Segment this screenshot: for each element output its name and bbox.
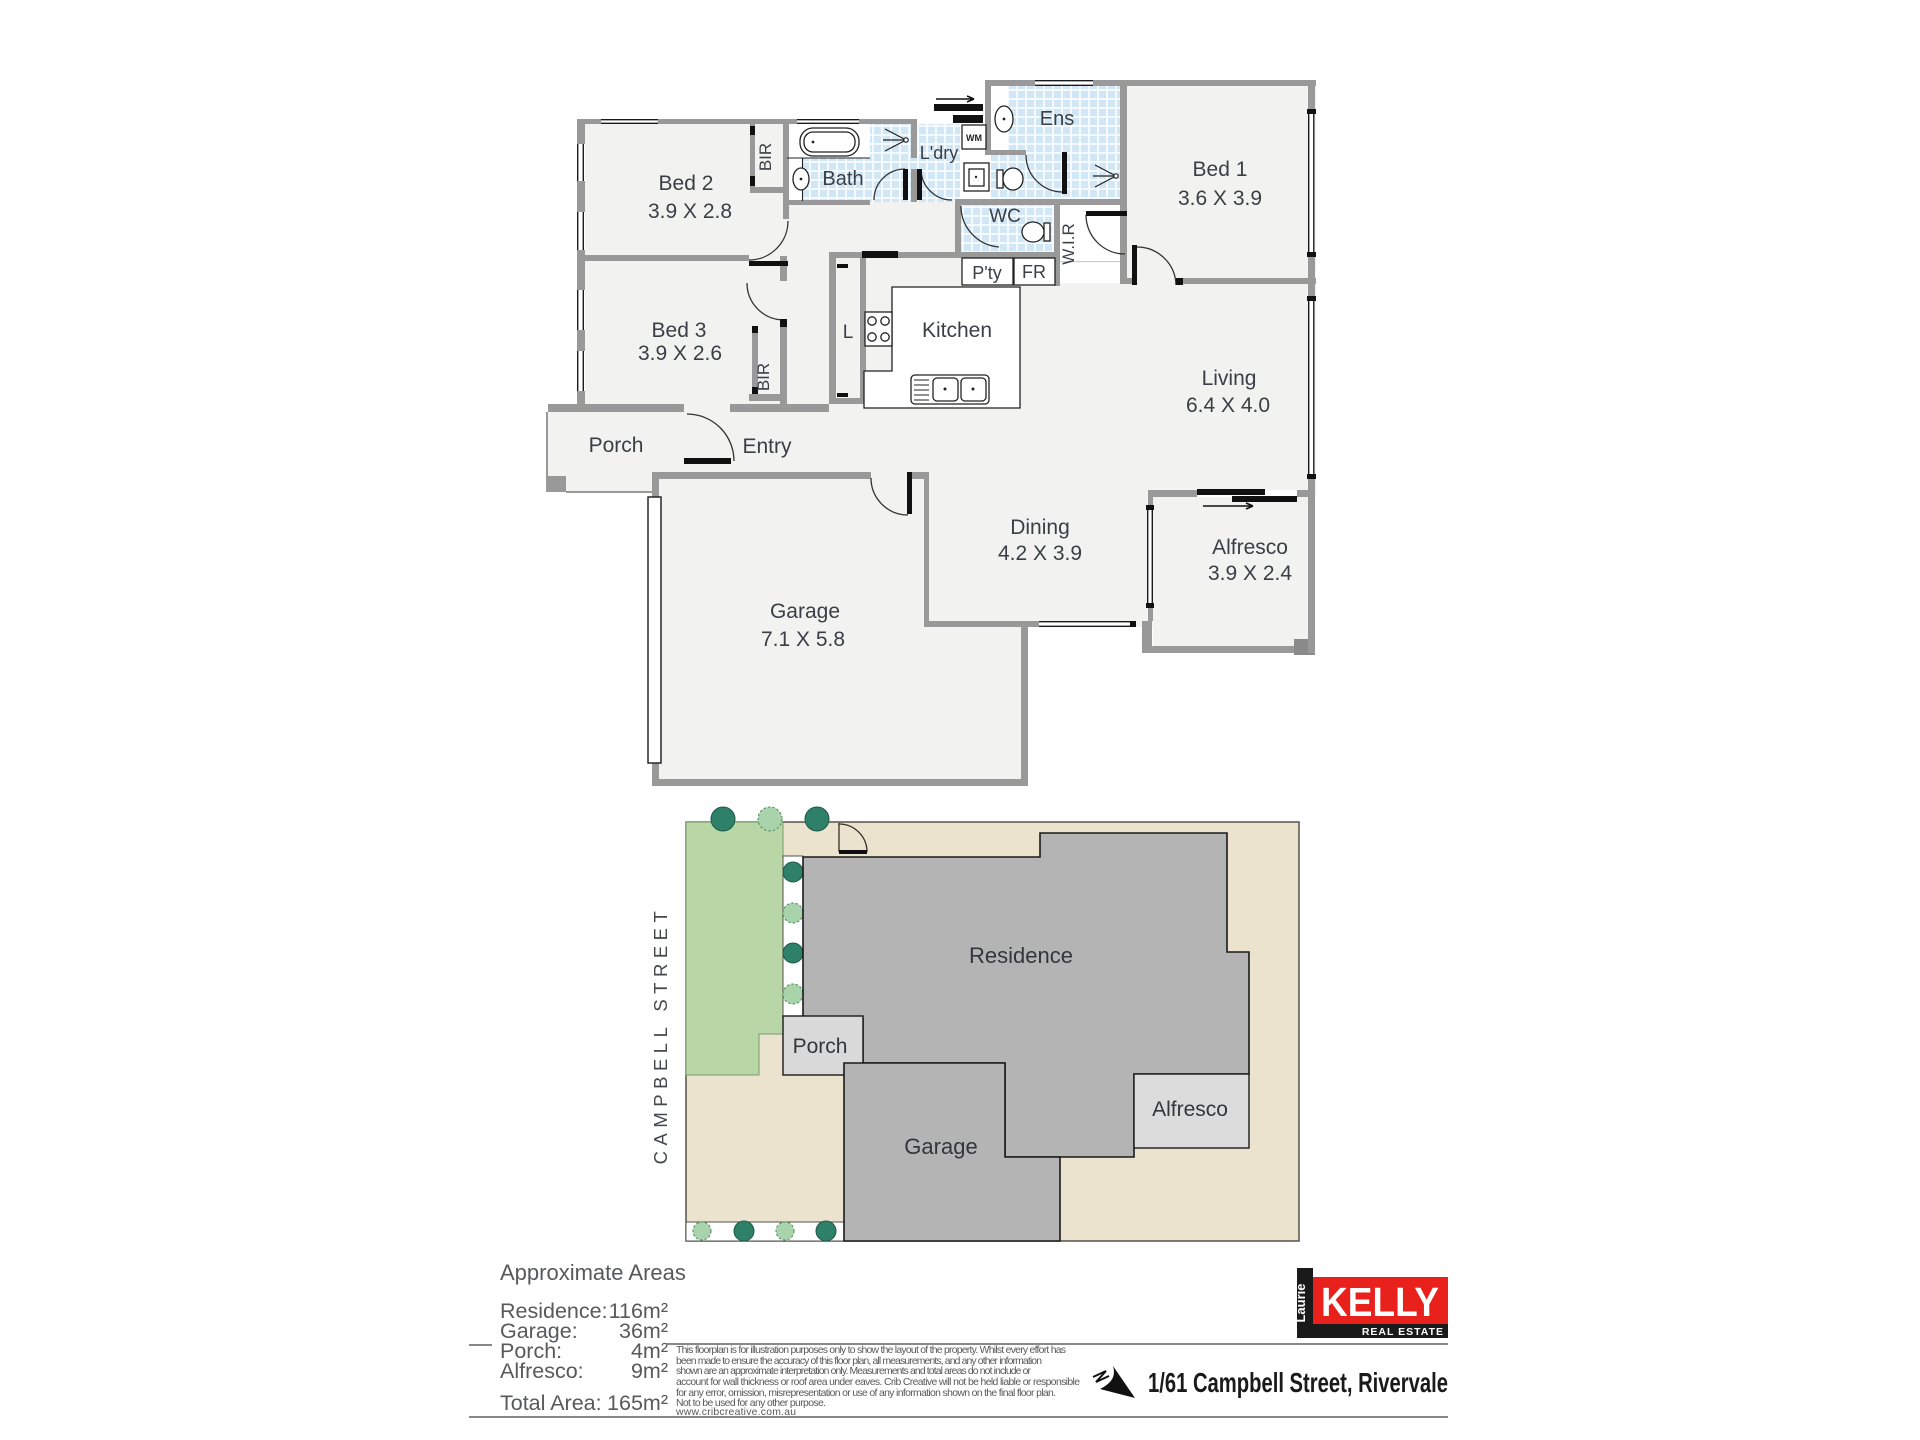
svg-text:Porch: Porch [589, 434, 644, 457]
svg-text:Bath: Bath [822, 168, 863, 190]
svg-text:Alfresco:: Alfresco: [500, 1359, 584, 1383]
svg-text:This floorplan is for illustra: This floorplan is for illustration purpo… [676, 1345, 1066, 1356]
svg-text:W.I.R: W.I.R [1059, 223, 1078, 265]
svg-text:account for wall thickness or: account for wall thickness or roof area … [676, 1377, 1080, 1388]
svg-text:Ens: Ens [1040, 108, 1074, 130]
svg-text:P'ty: P'ty [972, 263, 1001, 283]
svg-text:3.6 X 3.9: 3.6 X 3.9 [1178, 187, 1262, 210]
svg-text:CAMPBELL STREET: CAMPBELL STREET [650, 906, 671, 1165]
svg-text:Bed 1: Bed 1 [1193, 158, 1248, 181]
svg-text:Garage: Garage [770, 600, 840, 623]
svg-text:3.9 X 2.6: 3.9 X 2.6 [638, 342, 722, 365]
svg-text:Dining: Dining [1010, 516, 1070, 539]
svg-text:WM: WM [966, 133, 982, 143]
svg-text:Entry: Entry [742, 435, 792, 458]
svg-text:L: L [843, 322, 854, 343]
svg-text:REAL ESTATE: REAL ESTATE [1362, 1326, 1444, 1338]
svg-text:FR: FR [1022, 262, 1046, 282]
svg-text:Kitchen: Kitchen [922, 319, 992, 342]
svg-text:7.1 X 5.8: 7.1 X 5.8 [761, 628, 845, 651]
svg-text:9m²: 9m² [631, 1359, 668, 1383]
svg-text:Living: Living [1202, 367, 1257, 390]
svg-text:Alfresco: Alfresco [1152, 1098, 1228, 1121]
svg-text:4.2 X 3.9: 4.2 X 3.9 [998, 542, 1082, 565]
svg-text:Approximate Areas: Approximate Areas [500, 1260, 686, 1285]
svg-text:3.9 X 2.8: 3.9 X 2.8 [648, 200, 732, 223]
svg-text:Laurie: Laurie [1293, 1283, 1308, 1322]
svg-text:KELLY: KELLY [1321, 1279, 1439, 1325]
svg-text:165m²: 165m² [607, 1391, 668, 1415]
svg-text:L'dry: L'dry [920, 143, 958, 163]
svg-text:3.9 X 2.4: 3.9 X 2.4 [1208, 562, 1292, 585]
svg-text:6.4 X 4.0: 6.4 X 4.0 [1186, 394, 1270, 417]
svg-text:Garage: Garage [904, 1134, 977, 1159]
svg-text:Bed 2: Bed 2 [659, 172, 714, 195]
svg-text:Bed 3: Bed 3 [652, 319, 707, 342]
svg-text:1/61 Campbell Street, Riverval: 1/61 Campbell Street, Rivervale [1148, 1367, 1448, 1398]
svg-text:Total Area:: Total Area: [500, 1391, 602, 1415]
svg-text:Alfresco: Alfresco [1212, 536, 1288, 559]
svg-text:shown are an approximate inter: shown are an approximate interpretation … [676, 1366, 1032, 1377]
svg-text:WC: WC [989, 206, 1021, 227]
svg-text:Residence: Residence [969, 943, 1073, 968]
svg-text:BIR: BIR [756, 143, 775, 171]
svg-text:Porch: Porch [793, 1035, 848, 1058]
svg-text:BIR: BIR [754, 363, 773, 391]
